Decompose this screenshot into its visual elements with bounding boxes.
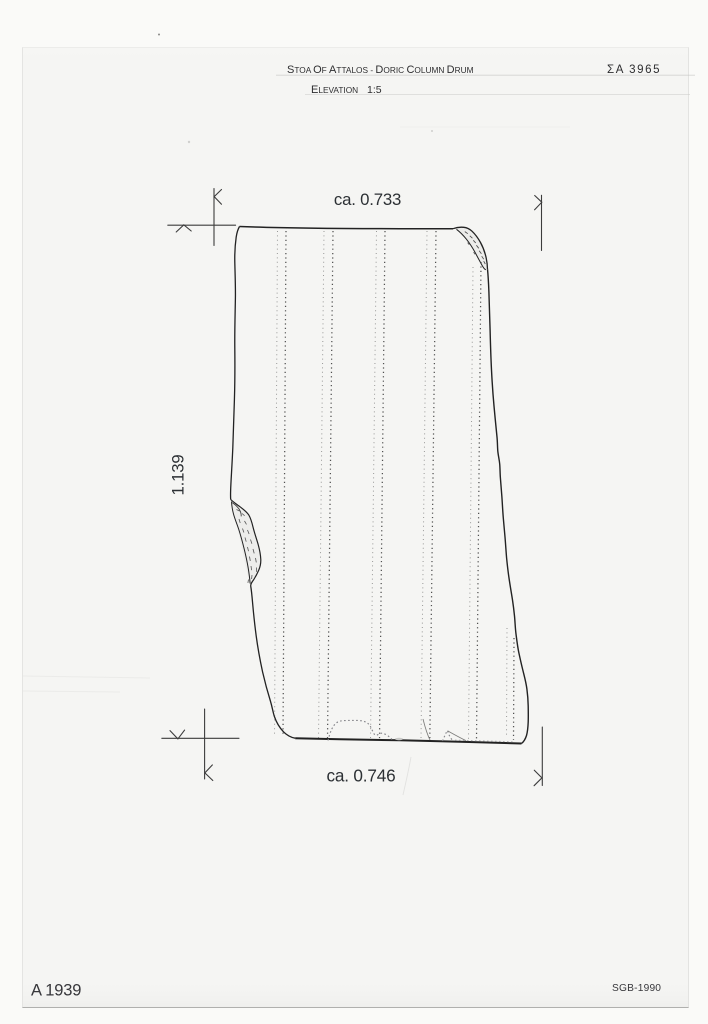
svg-text:ELEVATION: ELEVATION	[311, 84, 358, 96]
svg-text:ca. 0.733: ca. 0.733	[334, 190, 401, 209]
svg-text:ca. 0.746: ca. 0.746	[327, 766, 396, 786]
svg-text:STOA OF ATTALOS - DORIC COLUMN: STOA OF ATTALOS - DORIC COLUMN DRUM	[287, 64, 474, 76]
svg-text:1.139: 1.139	[169, 455, 188, 496]
svg-text:SGB-1990: SGB-1990	[612, 983, 661, 994]
svg-text:A 1939: A 1939	[31, 982, 81, 1000]
svg-text:1:5: 1:5	[367, 84, 382, 96]
svg-text:ΣA 3965: ΣA 3965	[607, 64, 661, 76]
